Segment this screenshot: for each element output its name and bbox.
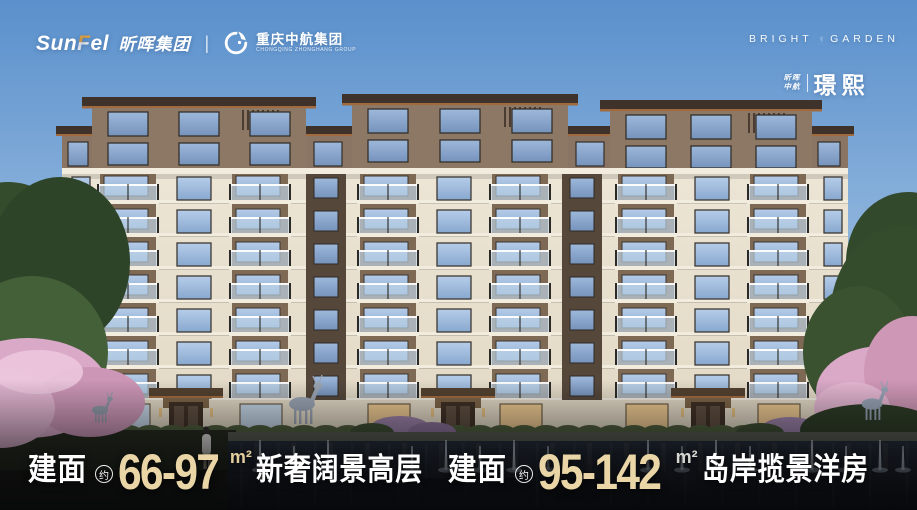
sunfel-cn-label: 昕晖集团 bbox=[118, 35, 190, 54]
owner-stack: 昕晖 中航 bbox=[784, 74, 801, 91]
approx-circle: 约 bbox=[95, 465, 113, 483]
logo-divider: | bbox=[204, 33, 209, 54]
zhonghang-text: 重庆中航集团 CHONGQING ZHONGHANG GROUP bbox=[256, 33, 356, 54]
owner-line2: 中航 bbox=[784, 83, 801, 92]
area-tagline: 建面 约 66-97 m² 新奢阔景高层 建面 约 95-142 m² 岛岸揽景… bbox=[28, 444, 876, 492]
bright-garden-row: BRIGHT GARDEN bbox=[749, 18, 899, 60]
area-label: 建面 bbox=[28, 444, 87, 492]
zhonghang-en-label: CHONGQING ZHONGHANG GROUP bbox=[256, 48, 356, 53]
sunfel-logo: SunFel 昕晖集团 bbox=[36, 30, 190, 56]
area-range: 66-97 bbox=[118, 452, 218, 492]
product-desc: 新奢阔景高层 bbox=[256, 444, 423, 492]
tagline-segment-highrise: 建面 约 66-97 m² 新奢阔景高层 bbox=[28, 444, 430, 492]
project-logo: BRIGHT GARDEN 昕晖 中航 璟熙 bbox=[749, 18, 899, 100]
zhonghang-logo: 重庆中航集团 CHONGQING ZHONGHANG GROUP bbox=[223, 30, 356, 56]
project-name: 璟熙 bbox=[814, 66, 870, 100]
project-name-row: 昕晖 中航 璟熙 bbox=[749, 66, 899, 100]
area-unit: m² bbox=[230, 447, 252, 468]
garden-label: GARDEN bbox=[830, 33, 899, 45]
tagline-segment-lowrise: 建面 约 95-142 m² 岛岸揽景洋房 bbox=[448, 444, 876, 492]
zhonghang-swirl-icon bbox=[223, 30, 249, 56]
bright-garden-emblem-icon bbox=[820, 18, 823, 60]
bright-label: BRIGHT bbox=[749, 33, 813, 45]
area-unit: m² bbox=[676, 447, 698, 468]
poster: SunFel 昕晖集团 | 重庆中航集团 CHONGQING ZHONGHANG… bbox=[0, 0, 917, 510]
area-label: 建面 bbox=[448, 444, 507, 492]
sunfel-accent-letter: F bbox=[77, 32, 90, 55]
approx-circle: 约 bbox=[515, 465, 533, 483]
zhonghang-cn-label: 重庆中航集团 bbox=[256, 33, 356, 47]
area-range: 95-142 bbox=[538, 452, 660, 492]
project-name-divider bbox=[807, 74, 808, 92]
developer-logos: SunFel 昕晖集团 | 重庆中航集团 CHONGQING ZHONGHANG… bbox=[36, 30, 356, 56]
product-desc: 岛岸揽景洋房 bbox=[702, 444, 869, 492]
sunfel-latin: SunFel bbox=[36, 32, 109, 55]
